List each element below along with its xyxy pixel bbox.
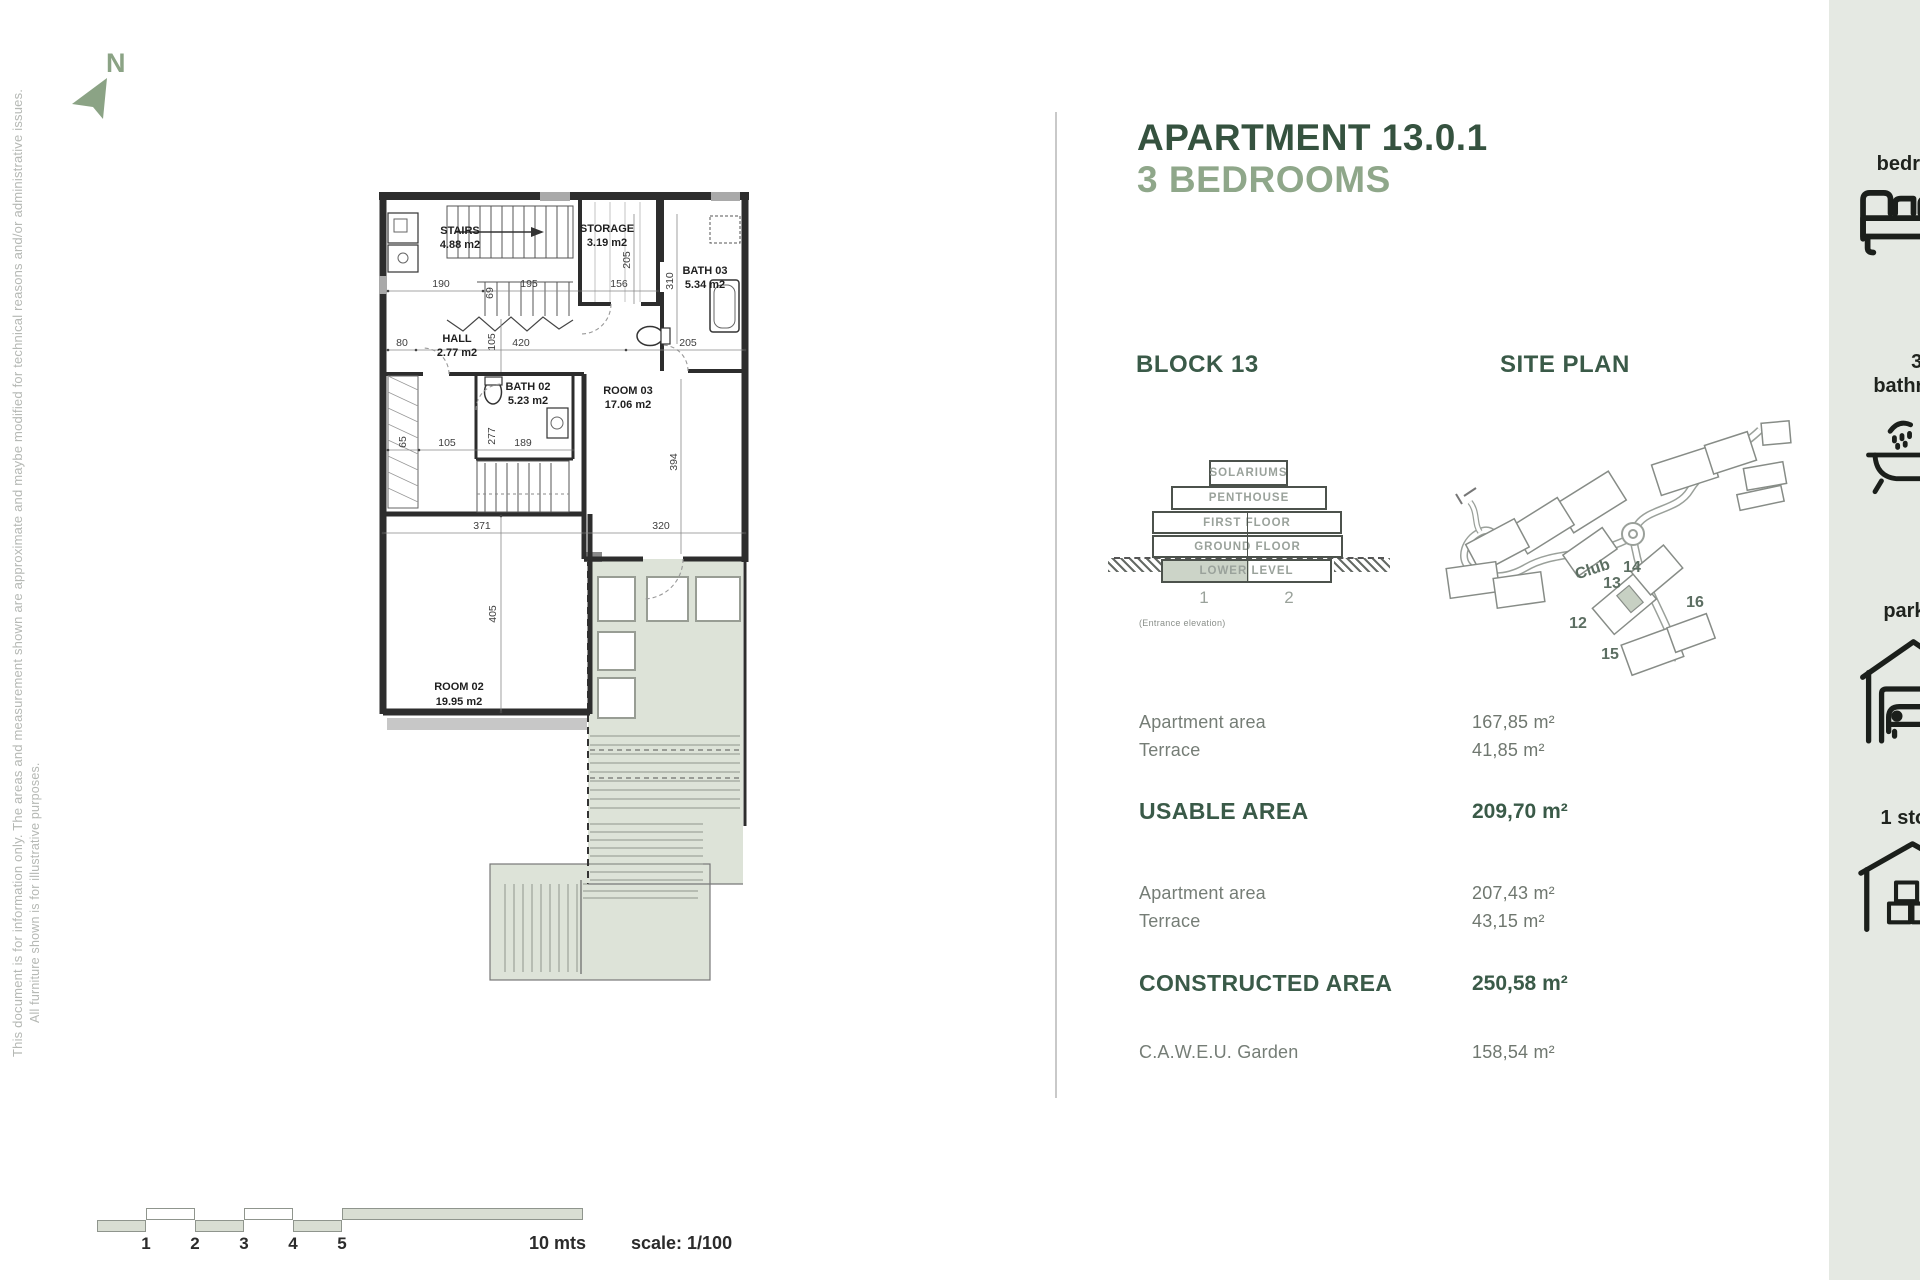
north-arrow-icon	[72, 78, 107, 119]
dim-195: 195	[520, 278, 538, 290]
ground-hatch-right	[1334, 558, 1390, 572]
room-storage-area: 3.19 m2	[587, 237, 627, 249]
block-heading: BLOCK 13	[1136, 351, 1259, 379]
usable-total-value: 209,70 m²	[1472, 800, 1568, 824]
level-solariums: SOLARIUMS	[1209, 460, 1288, 486]
toilet-bath03	[637, 327, 663, 346]
laundry-unit	[388, 213, 418, 243]
dim-394: 394	[668, 453, 680, 471]
scale-end-label: 10 mts	[529, 1233, 586, 1254]
unit-1-label: 1	[1194, 588, 1214, 608]
exterior-wall-band	[387, 718, 587, 730]
room-storage-name: STORAGE	[580, 223, 634, 235]
feature-bathrooms-label: bathrooms	[1840, 374, 1920, 398]
scale-segment	[342, 1208, 583, 1220]
scale-tick-1: 1	[141, 1234, 150, 1254]
unit-divider-line	[1247, 511, 1248, 583]
usable-row1-value: 167,85 m²	[1472, 712, 1555, 733]
scale-tick-3: 3	[239, 1234, 248, 1254]
scale-segment	[146, 1208, 195, 1220]
dim-205-storage: 205	[621, 251, 633, 269]
dim-320: 320	[652, 520, 670, 532]
disclaimer-line-1: This document is for information only. T…	[10, 89, 25, 1057]
lower-staircase	[477, 461, 569, 512]
vertical-divider	[1055, 112, 1057, 1098]
room-bath02-name: BATH 02	[505, 381, 550, 393]
feature-bedrooms-count: 3	[1840, 128, 1920, 152]
title-line-2: 3 BEDROOMS	[1137, 159, 1488, 201]
dim-420: 420	[512, 337, 530, 349]
main-staircase	[447, 206, 573, 316]
level-penthouse: PENTHOUSE	[1171, 486, 1327, 510]
dim-405: 405	[487, 605, 499, 623]
site-label-13: 13	[1603, 575, 1621, 592]
dim-189: 189	[514, 437, 532, 449]
stair-break-line	[447, 317, 573, 331]
scale-ratio-label: scale: 1/100	[631, 1233, 732, 1254]
storage-icon	[1857, 838, 1920, 934]
usable-row2-value: 41,85 m²	[1472, 740, 1545, 761]
scale-tick-4: 4	[288, 1234, 297, 1254]
brochure-page: This document is for information only. T…	[0, 0, 1920, 1280]
room-hall-area: 2.77 m2	[437, 347, 477, 359]
usable-row1-label: Apartment area	[1139, 712, 1266, 733]
dim-65: 65	[397, 436, 409, 448]
elevation-diagram: SOLARIUMS PENTHOUSE FIRST FLOOR GROUND F…	[1106, 458, 1390, 638]
page-title: APARTMENT 13.0.1 3 BEDROOMS	[1137, 117, 1488, 201]
constructed-row2-value: 43,15 m²	[1472, 911, 1545, 932]
bed-icon	[1856, 186, 1920, 264]
feature-storage: 1 storage	[1840, 806, 1920, 830]
garden-label: C.A.W.E.U. Garden	[1139, 1042, 1298, 1063]
room-bath03-name: BATH 03	[682, 265, 727, 277]
scale-tick-5: 5	[337, 1234, 346, 1254]
dim-277: 277	[486, 427, 498, 445]
site-label-15: 15	[1601, 646, 1619, 663]
dim-80: 80	[396, 337, 408, 349]
feature-parkings-label: parkings	[1840, 599, 1920, 623]
constructed-total-value: 250,58 m²	[1472, 972, 1568, 996]
garage-icon	[1858, 630, 1920, 748]
site-label-16: 16	[1686, 594, 1704, 611]
stair-arrow	[531, 227, 544, 237]
constructed-row1-value: 207,43 m²	[1472, 883, 1555, 904]
feature-parkings: 2 parkings	[1840, 575, 1920, 623]
constructed-row1-label: Apartment area	[1139, 883, 1266, 904]
constructed-row2-label: Terrace	[1139, 911, 1200, 932]
dim-310: 310	[664, 272, 676, 290]
garden-value: 158,54 m²	[1472, 1042, 1555, 1063]
dim-156: 156	[610, 278, 628, 290]
room-room02-name: ROOM 02	[434, 681, 484, 693]
usable-row2-label: Terrace	[1139, 740, 1200, 761]
scale-segment	[293, 1220, 342, 1232]
disclaimer-line-2: All furniture shown is for illustrative …	[28, 762, 42, 1023]
feature-bathrooms: 3,5 bathrooms	[1840, 350, 1920, 398]
room-stairs-area: 4.88 m2	[440, 239, 480, 251]
feature-bedrooms-label: bedrooms	[1840, 152, 1920, 176]
shower-utility	[388, 245, 418, 272]
dim-190: 190	[432, 278, 450, 290]
room-stairs-name: STAIRS	[440, 225, 480, 237]
room-room03-area: 17.06 m2	[605, 399, 651, 411]
scale-segment	[97, 1220, 146, 1232]
site-plan-heading: SITE PLAN	[1500, 351, 1630, 379]
unit-2-label: 2	[1279, 588, 1299, 608]
feature-bedrooms: 3 bedrooms	[1840, 128, 1920, 176]
shower-dashed	[710, 216, 740, 243]
ground-hatch-left	[1108, 558, 1162, 572]
site-label-14: 14	[1623, 559, 1641, 576]
room-hall-name: HALL	[442, 333, 472, 345]
constructed-total-label: CONSTRUCTED AREA	[1139, 970, 1392, 997]
feature-storage-count: 1 storage	[1840, 806, 1920, 830]
scale-segment	[244, 1208, 293, 1220]
site-buildings	[1446, 421, 1791, 675]
room-room02-area: 19.95 m2	[436, 696, 482, 708]
room-room03-name: ROOM 03	[603, 385, 653, 397]
dim-105-hall: 105	[486, 333, 498, 351]
north-arrow: N	[60, 28, 145, 128]
usable-total-label: USABLE AREA	[1139, 798, 1309, 825]
feature-parkings-count: 2	[1840, 575, 1920, 599]
dim-371: 371	[473, 520, 491, 532]
room-bath02-area: 5.23 m2	[508, 395, 548, 407]
elevation-caption: (Entrance elevation)	[1139, 618, 1226, 628]
bathtub-icon	[1862, 414, 1920, 496]
site-plan-map: Club 12 13 14 15 16	[1440, 390, 1800, 690]
room-bath03-area: 5.34 m2	[685, 279, 725, 291]
scale-segment	[195, 1220, 244, 1232]
scale-tick-2: 2	[190, 1234, 199, 1254]
site-label-12: 12	[1569, 615, 1587, 632]
feature-bathrooms-count: 3,5	[1840, 350, 1920, 374]
title-line-1: APARTMENT 13.0.1	[1137, 117, 1488, 159]
dim-105: 105	[438, 437, 456, 449]
sink-bath02	[547, 408, 568, 438]
floor-plan: 190 195 156 69 205 310 80 105 420 205 10…	[343, 184, 763, 984]
north-label: N	[106, 48, 126, 78]
dim-69: 69	[484, 287, 496, 299]
dim-205-hall: 205	[679, 337, 697, 349]
